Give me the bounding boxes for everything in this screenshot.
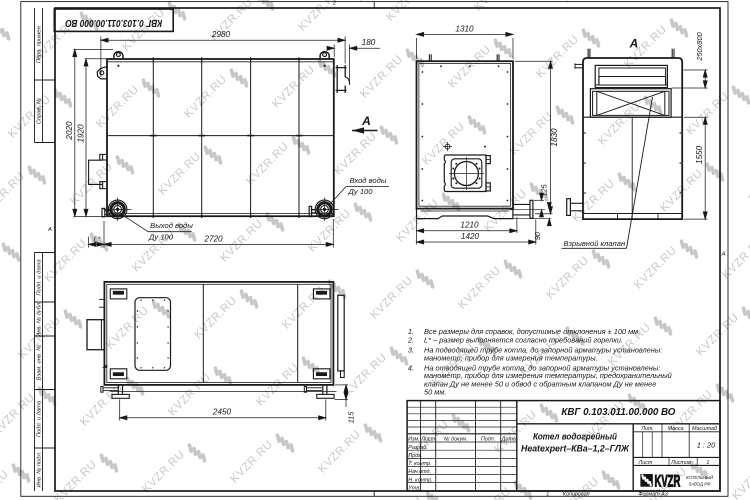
svg-text:А: А <box>47 227 52 233</box>
svg-text:Подп. и дата: Подп. и дата <box>37 259 43 296</box>
svg-text:KVZR.RU: KVZR.RU <box>52 458 99 500</box>
svg-text:Лист: Лист <box>638 460 653 466</box>
svg-text:Т. контр.: Т. контр. <box>408 461 431 467</box>
svg-text:4.: 4. <box>408 363 414 372</box>
svg-text:KVZR.RU: KVZR.RU <box>332 130 379 177</box>
svg-text:50 мм.: 50 мм. <box>424 387 446 396</box>
svg-text:Котел водогрейный: Котел водогрейный <box>533 432 617 442</box>
svg-text:Масштаб: Масштаб <box>692 426 718 432</box>
svg-text:Вход воды: Вход воды <box>350 176 387 185</box>
svg-text:2450: 2450 <box>212 408 232 417</box>
svg-text:KVZR.RU: KVZR.RU <box>156 150 203 197</box>
svg-text:KVZR.RU: KVZR.RU <box>420 120 467 167</box>
svg-text:Утв.: Утв. <box>407 485 420 491</box>
svg-text:115: 115 <box>347 411 356 424</box>
svg-text:Выход воды: Выход воды <box>150 221 193 230</box>
svg-text:KVZR.RU: KVZR.RU <box>358 53 405 100</box>
svg-text:KVZR.RU: KVZR.RU <box>466 485 513 500</box>
svg-text:KVZR.RU: KVZR.RU <box>544 254 591 301</box>
svg-text:KVZR.RU: KVZR.RU <box>0 170 27 217</box>
svg-text:KVZR.RU: KVZR.RU <box>104 304 151 351</box>
svg-text:KVZR.RU: KVZR.RU <box>632 244 679 291</box>
svg-text:клапан Ду не менее 50 и обвод: клапан Ду не менее 50 и обвод с обратным… <box>424 379 656 388</box>
svg-text:3.: 3. <box>408 345 414 354</box>
svg-text:Heatexpert–КВа–1,2–ГЛЖ: Heatexpert–КВа–1,2–ГЛЖ <box>521 443 630 453</box>
svg-text:KVZR.RU: KVZR.RU <box>342 351 389 398</box>
svg-text:1310: 1310 <box>455 24 474 33</box>
svg-text:Взрывной клапан: Взрывной клапан <box>563 239 626 248</box>
svg-text:Разраб.: Разраб. <box>408 445 428 451</box>
svg-text:KVZR.RU: KVZR.RU <box>218 217 265 264</box>
svg-text:125: 125 <box>540 183 549 196</box>
svg-text:KVZR.RU: KVZR.RU <box>746 157 750 204</box>
svg-text:Формат А3: Формат А3 <box>638 492 668 498</box>
svg-text:2020: 2020 <box>65 121 74 141</box>
svg-text:Изм.: Изм. <box>408 437 420 443</box>
svg-text:KVZR: KVZR <box>655 473 681 491</box>
svg-text:манометр, прибор для измерения: манометр, прибор для измерения температу… <box>424 353 598 362</box>
svg-text:KVZR.RU: KVZR.RU <box>694 311 741 358</box>
svg-text:KVZR.RU: KVZR.RU <box>0 391 37 438</box>
svg-text:KVZR.RU: KVZR.RU <box>0 247 1 294</box>
svg-text:L*: L* <box>94 235 102 244</box>
svg-text:KVZR.RU: KVZR.RU <box>166 371 213 418</box>
svg-text:А: А <box>361 114 371 128</box>
svg-text:Инв. № подл.: Инв. № подл. <box>37 452 43 488</box>
svg-text:Справ. №: Справ. № <box>37 98 43 124</box>
svg-text:Н. контр.: Н. контр. <box>408 477 432 483</box>
svg-text:KVZR.RU: KVZR.RU <box>394 197 441 244</box>
svg-text:2980: 2980 <box>211 30 231 39</box>
svg-text:Копировал: Копировал <box>563 492 590 498</box>
svg-text:250х800: 250х800 <box>695 31 704 61</box>
svg-text:KVZR.RU: KVZR.RU <box>296 0 343 33</box>
svg-text:Ду 100: Ду 100 <box>347 187 373 196</box>
svg-text:А: А <box>721 252 726 258</box>
svg-text:KVZR.RU: KVZR.RU <box>508 110 555 157</box>
svg-text:КВГ 0.103.011.00.000 ВО: КВГ 0.103.011.00.000 ВО <box>561 406 675 418</box>
svg-text:1420: 1420 <box>461 232 480 241</box>
svg-text:А: А <box>629 37 639 51</box>
svg-text:Инв. № дубл.: Инв. № дубл. <box>37 301 43 337</box>
svg-text:KVZR.RU: KVZR.RU <box>570 177 617 224</box>
svg-text:KVZR.RU: KVZR.RU <box>730 455 750 500</box>
svg-text:KVZR.RU: KVZR.RU <box>244 140 291 187</box>
svg-text:KVZR.RU: KVZR.RU <box>94 83 141 130</box>
svg-text:KVZR.RU: KVZR.RU <box>270 63 317 110</box>
svg-text:KVZR.RU: KVZR.RU <box>42 237 89 284</box>
svg-text:180: 180 <box>362 38 376 47</box>
svg-text:КВГ 0.103.011.00.000 ВО: КВГ 0.103.011.00.000 ВО <box>65 17 162 29</box>
svg-text:KVZR.RU: KVZR.RU <box>140 448 187 495</box>
svg-text:№ докум.: № докум. <box>444 437 468 443</box>
svg-text:KVZR.RU: KVZR.RU <box>6 93 53 140</box>
svg-text:KVZR.RU: KVZR.RU <box>316 428 363 475</box>
svg-text:2: 2 <box>332 1 336 7</box>
svg-text:Листов: Листов <box>670 460 691 466</box>
svg-text:Дата: Дата <box>501 437 516 443</box>
svg-text:Лист: Лист <box>420 437 435 443</box>
svg-text:1920: 1920 <box>76 124 85 143</box>
svg-text:2720: 2720 <box>203 235 223 244</box>
svg-text:ЗАВОД РФ: ЗАВОД РФ <box>689 482 712 487</box>
svg-text:1830: 1830 <box>550 128 559 147</box>
svg-text:KVZR.RU: KVZR.RU <box>0 468 11 500</box>
svg-text:Подп.: Подп. <box>481 437 495 443</box>
svg-text:КОТЕЛЬНЫЙ: КОТЕЛЬНЫЙ <box>686 475 714 480</box>
svg-text:Подп. и дата: Подп. и дата <box>37 400 43 437</box>
svg-text:KVZR.RU: KVZR.RU <box>720 234 750 281</box>
svg-text:KVZR.RU: KVZR.RU <box>368 274 415 321</box>
svg-text:Ду 100: Ду 100 <box>148 233 174 242</box>
svg-text:KVZR.RU: KVZR.RU <box>534 33 581 80</box>
svg-text:1 : 20: 1 : 20 <box>697 440 716 449</box>
svg-text:Взам. инв. №: Взам. инв. № <box>37 345 43 381</box>
svg-text:KVZR.RU: KVZR.RU <box>228 438 275 485</box>
svg-text:KVZR.RU: KVZR.RU <box>456 264 503 311</box>
svg-text:1210: 1210 <box>460 221 479 230</box>
svg-text:KVZR.RU: KVZR.RU <box>684 90 731 137</box>
svg-text:KVZR.RU: KVZR.RU <box>192 294 239 341</box>
svg-text:Масса: Масса <box>668 426 684 432</box>
svg-text:Перв. примен.: Перв. примен. <box>37 25 43 64</box>
svg-text:Лит.: Лит. <box>640 426 654 432</box>
svg-text:KVZR.RU: KVZR.RU <box>182 73 229 120</box>
svg-text:2.: 2. <box>407 335 414 344</box>
svg-text:1: 1 <box>546 492 549 498</box>
svg-text:Нач.отд.: Нач.отд. <box>408 469 431 475</box>
svg-text:1: 1 <box>706 460 709 466</box>
svg-text:90: 90 <box>533 231 542 240</box>
svg-text:1550: 1550 <box>695 145 704 164</box>
svg-text:KVZR.RU: KVZR.RU <box>384 0 431 23</box>
svg-text:L* – размер выполняется соглас: L* – размер выполняется согласно требова… <box>424 335 623 344</box>
svg-text:Пров.: Пров. <box>408 453 422 459</box>
